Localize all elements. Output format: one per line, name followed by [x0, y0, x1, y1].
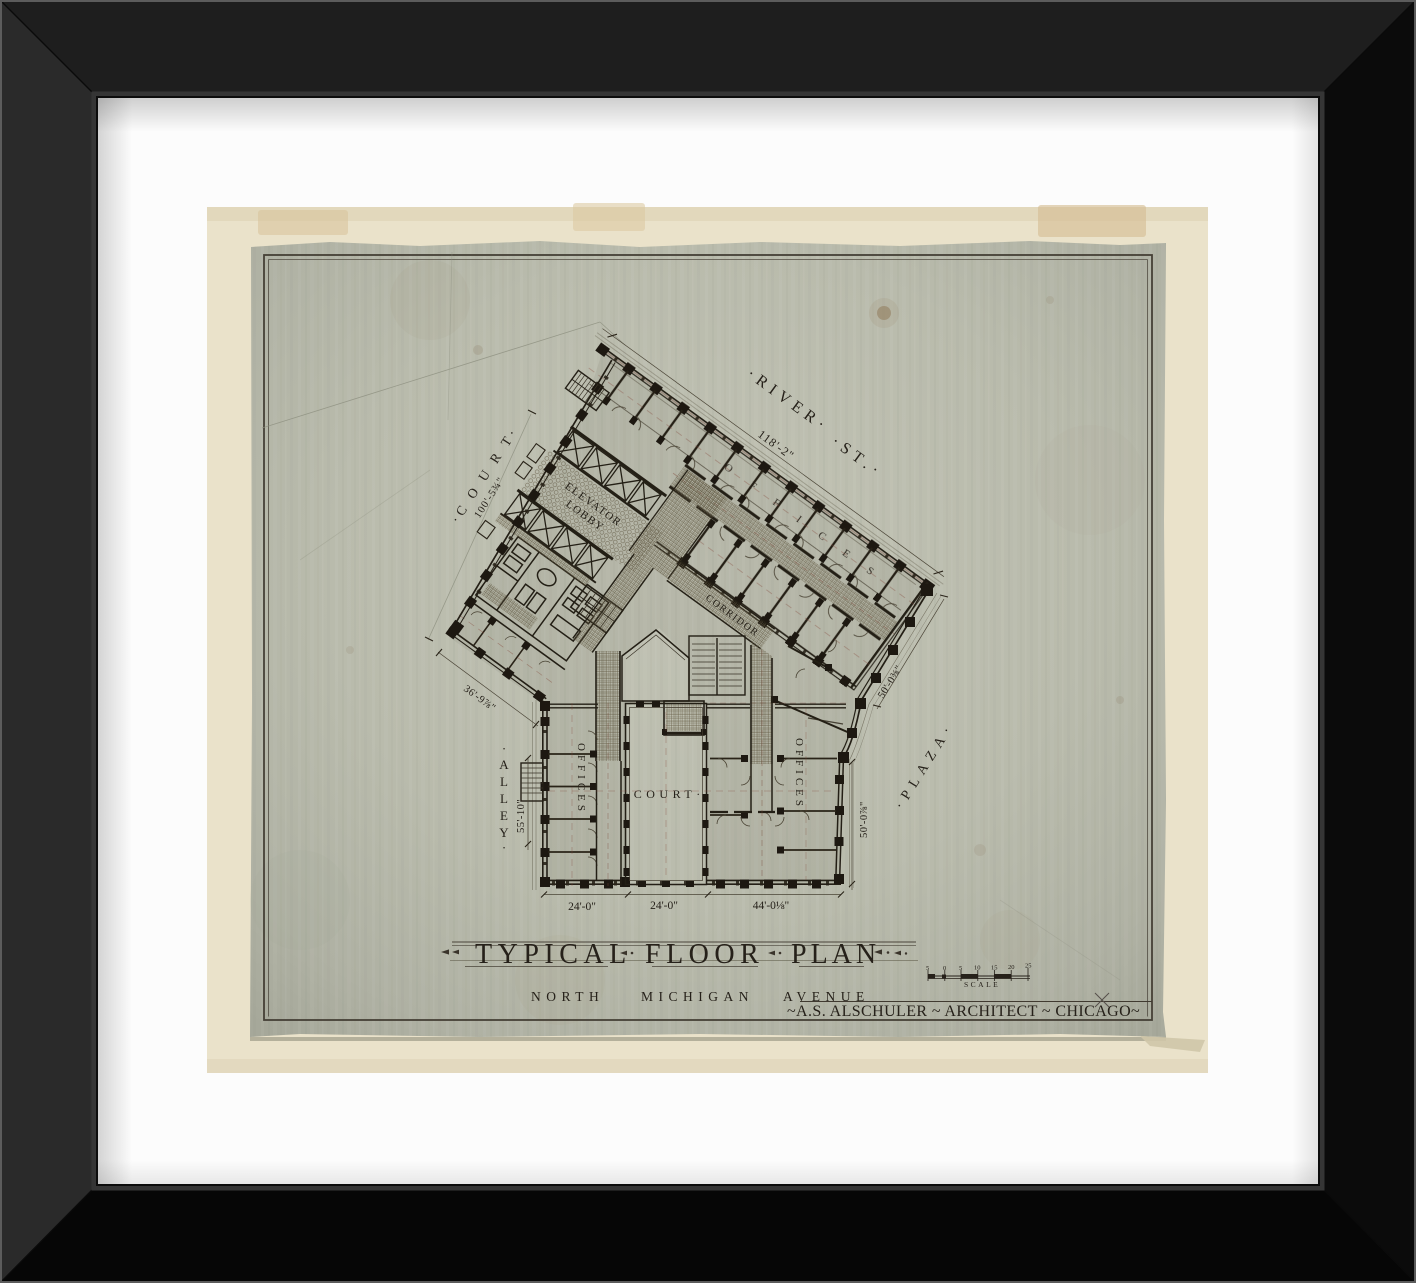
svg-text:5: 5	[926, 965, 929, 972]
svg-text:55'-10": 55'-10"	[516, 799, 527, 833]
svg-text:25: 25	[1025, 963, 1032, 970]
svg-text:A: A	[499, 757, 509, 772]
svg-text:50'-0⅞": 50'-0⅞"	[859, 801, 870, 838]
svg-text:·COURT·: ·COURT·	[625, 787, 704, 801]
svg-text:24'-0": 24'-0"	[650, 900, 678, 912]
svg-text:Y: Y	[499, 825, 509, 840]
svg-text:L: L	[500, 774, 508, 789]
svg-text:20: 20	[1008, 964, 1015, 971]
svg-text:·: ·	[502, 840, 506, 855]
svg-text:·: ·	[502, 741, 506, 756]
svg-text:NORTH: NORTH	[531, 989, 604, 1004]
svg-text:10: 10	[974, 965, 981, 972]
svg-text:15: 15	[991, 965, 998, 972]
svg-text:SCALE: SCALE	[964, 980, 1000, 989]
svg-text:FLOOR: FLOOR	[645, 939, 764, 970]
svg-text:24'-0": 24'-0"	[568, 901, 596, 913]
svg-text:TYPICAL: TYPICAL	[475, 939, 632, 970]
svg-text:0: 0	[943, 965, 946, 972]
svg-text:5: 5	[959, 965, 962, 972]
svg-text:E: E	[500, 808, 508, 823]
svg-text:L: L	[500, 791, 508, 806]
svg-text:~A.S. ALSCHULER ~ ARCHITECT ~: ~A.S. ALSCHULER ~ ARCHITECT ~ CHICAGO~	[787, 1003, 1140, 1020]
svg-text:MICHIGAN: MICHIGAN	[641, 989, 754, 1004]
svg-text:44'-0⅛": 44'-0⅛"	[753, 900, 789, 912]
svg-text:PLAN: PLAN	[791, 939, 880, 970]
